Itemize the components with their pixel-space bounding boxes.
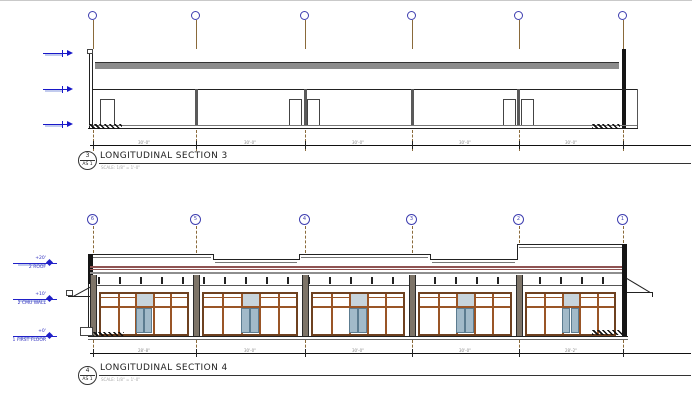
- door-transom-glass: [562, 294, 580, 306]
- level-arrow-line: [43, 53, 68, 54]
- parapet-step: [213, 254, 214, 260]
- storefront-mullion: [544, 294, 546, 334]
- dimension-text: 30'-0": [220, 348, 280, 353]
- right-canopy-slope: [626, 278, 650, 293]
- scale-note: SCALE: 1/8" = 1'-0": [101, 377, 140, 382]
- grid-bubble: [300, 11, 309, 20]
- grid-bubble: [407, 11, 416, 20]
- grid-line: [623, 226, 624, 243]
- dimension-tick: [412, 141, 413, 149]
- dimension-text: 30'-0": [328, 140, 388, 145]
- storefront-mullion: [259, 294, 261, 334]
- grid-line: [196, 226, 197, 253]
- roof-deck: [95, 63, 619, 69]
- level-arrow-tick: [62, 121, 63, 128]
- door-transom-glass: [241, 294, 260, 306]
- wall-pier: [409, 275, 416, 336]
- grid-line: [196, 20, 197, 49]
- footing-hatch: [592, 124, 620, 129]
- door-leaf: [250, 308, 258, 333]
- level-name: 2 CMU WALL: [8, 301, 46, 306]
- grid-line: [305, 20, 306, 49]
- tower-parapet-inner-line: [519, 247, 625, 248]
- level-name: 1 FIRST FLOOR: [8, 338, 46, 343]
- grid-line: [93, 20, 94, 49]
- storefront-mullion: [597, 294, 599, 334]
- storefront-mullion: [579, 294, 581, 334]
- wall-top-line: [92, 89, 637, 90]
- drawing-title: LONGITUDINAL SECTION 4: [100, 363, 228, 373]
- grid-bubble: [191, 11, 200, 20]
- door-leaf: [358, 308, 366, 333]
- dimension-tick: [305, 349, 306, 357]
- door-leaf: [349, 308, 357, 333]
- dimension-text: 28'-2": [541, 348, 601, 353]
- footing-hatch: [592, 330, 622, 335]
- storefront-bay: [311, 292, 405, 336]
- right-canopy-edge: [627, 292, 653, 293]
- dimension-text: 28'-8": [114, 348, 174, 353]
- level-arrow-line: [43, 124, 68, 125]
- parapet-line: [213, 259, 299, 260]
- door-transom-glass: [349, 294, 367, 306]
- storefront-mullion: [492, 294, 494, 334]
- storefront-mullion: [170, 294, 172, 334]
- tower-right-edge: [622, 244, 627, 336]
- dimension-tick: [93, 349, 94, 357]
- parapet-line: [299, 254, 430, 255]
- level-name: 2 ROOF: [8, 265, 46, 270]
- grid-bubble: 3: [406, 214, 417, 225]
- storefront-mullion: [278, 294, 280, 334]
- drawing-title: LONGITUDINAL SECTION 3: [100, 151, 228, 161]
- dimension-tick: [196, 349, 197, 357]
- door-leaf: [456, 308, 464, 333]
- floor-line: [88, 336, 628, 337]
- grid-line: [412, 20, 413, 49]
- grid-bubble: 1: [617, 214, 628, 225]
- view-tag-number: 4: [79, 367, 96, 375]
- tower-left-edge: [517, 244, 518, 260]
- level-arrow-tick: [62, 50, 63, 57]
- parapet-inner-line: [90, 257, 211, 258]
- level-arrow-icon: [67, 121, 73, 127]
- level-marker-icon: [46, 259, 53, 266]
- door-transom-glass: [135, 294, 153, 306]
- parapet-line: [88, 254, 213, 255]
- soffit-line: [95, 285, 622, 286]
- scale-note: SCALE: 1/8" = 1'-0": [101, 165, 140, 170]
- grid-line: [412, 226, 413, 253]
- grid-bubble: [618, 11, 627, 20]
- dimension-text: 30'-0": [114, 140, 174, 145]
- door-leaf: [136, 308, 144, 333]
- dimension-tick: [412, 349, 413, 357]
- wall-pier: [516, 275, 523, 336]
- door-leaf: [571, 308, 579, 333]
- level-elevation: +0': [8, 329, 46, 334]
- door-leaf: [144, 308, 152, 333]
- wall-pier: [302, 275, 309, 336]
- grid-line: [93, 226, 94, 253]
- level-elevation: +10': [8, 292, 46, 297]
- grid-bubble: 4: [299, 214, 310, 225]
- level-arrow-glow: [45, 90, 63, 92]
- dimension-tick: [519, 141, 520, 149]
- fascia-line: [90, 269, 622, 270]
- grid-bubble: 5: [190, 214, 201, 225]
- level-marker-icon: [46, 332, 53, 339]
- door-opening: [289, 99, 302, 126]
- dimension-tick: [623, 349, 624, 357]
- joist-ticks: [98, 277, 620, 284]
- dimension-line: [90, 353, 691, 354]
- storefront-mullion: [153, 294, 155, 334]
- door-transom-glass: [456, 294, 474, 306]
- grid-bubble: [514, 11, 523, 20]
- dimension-text: 30'-0": [220, 140, 280, 145]
- parapet-line: [430, 259, 517, 260]
- storefront-bay: [418, 292, 512, 336]
- storefront-mullion: [331, 294, 333, 334]
- grid-bubble: 6: [87, 214, 98, 225]
- grid-line: [305, 226, 306, 253]
- parapet-inner-line: [301, 257, 428, 258]
- door-opening: [100, 99, 115, 126]
- storefront-mullion: [438, 294, 440, 334]
- level-arrow-line: [43, 89, 68, 90]
- storefront-mullion: [222, 294, 224, 334]
- door-opening: [521, 99, 534, 126]
- dimension-tick: [519, 349, 520, 357]
- door-leaf: [562, 308, 570, 333]
- door-leaf: [465, 308, 473, 333]
- column: [195, 89, 198, 126]
- parapet-step: [299, 254, 300, 260]
- dimension-tick: [93, 141, 94, 149]
- floor-line: [89, 125, 637, 126]
- wall-right-edge: [637, 89, 638, 128]
- right-canopy-end: [652, 292, 653, 297]
- grid-bubble: [88, 11, 97, 20]
- level-arrow-glow: [45, 125, 63, 127]
- column: [517, 89, 520, 126]
- footing-hatch: [89, 124, 122, 129]
- dimension-text: 30'-0": [541, 140, 601, 145]
- gray-band: [90, 272, 622, 274]
- dimension-tick: [305, 141, 306, 149]
- title-underline: [99, 375, 691, 376]
- left-canopy-end: [66, 290, 73, 296]
- dimension-text: 30'-0": [435, 140, 495, 145]
- parapet-inner-line: [215, 262, 297, 263]
- view-tag: 3 AS 1: [78, 151, 97, 170]
- storefront-bay: [202, 292, 298, 336]
- view-tag-sheet: AS 1: [79, 376, 96, 383]
- parapet-inner-line: [432, 262, 515, 263]
- floor-line: [88, 339, 628, 340]
- floor-line: [88, 128, 638, 129]
- grid-line: [519, 226, 520, 243]
- grid-bubble: 2: [513, 214, 524, 225]
- section3-drawing: 30'-0" 30'-0" 30'-0" 30'-0" 30'-0" 3 AS …: [0, 1, 692, 201]
- dimension-tick: [623, 141, 624, 149]
- title-underline: [99, 163, 691, 164]
- grid-line: [623, 20, 624, 49]
- wall-pier: [193, 275, 200, 336]
- tower-parapet-line: [517, 244, 627, 245]
- view-tag-number: 3: [79, 152, 96, 160]
- parapet-cap: [87, 49, 93, 54]
- drawing-sheet: 30'-0" 30'-0" 30'-0" 30'-0" 30'-0" 3 AS …: [0, 0, 692, 403]
- door-opening: [503, 99, 516, 126]
- section4-drawing: 6 5 4 3 2 1 +20' 2 ROOF +10' 2 CMU WALL …: [0, 201, 692, 403]
- dimension-tick: [196, 141, 197, 149]
- storefront-mullion: [385, 294, 387, 334]
- dimension-text: 30'-0": [328, 348, 388, 353]
- level-arrow-icon: [67, 86, 73, 92]
- door-leaf: [241, 308, 249, 333]
- column: [411, 89, 414, 126]
- dimension-line: [90, 145, 691, 146]
- parapet-step: [430, 254, 431, 260]
- storefront-mullion: [118, 294, 120, 334]
- level-arrow-icon: [67, 50, 73, 56]
- low-wall-stub: [80, 327, 93, 336]
- dimension-text: 30'-0": [435, 348, 495, 353]
- level-marker-icon: [46, 295, 53, 302]
- view-tag: 4 AS 1: [78, 366, 97, 385]
- storefront-bay: [99, 292, 189, 336]
- door-opening: [307, 99, 320, 126]
- grid-line: [519, 20, 520, 49]
- left-parapet: [89, 51, 90, 128]
- level-elevation: +20': [8, 256, 46, 261]
- footing-hatch: [92, 332, 124, 336]
- view-tag-sheet: AS 1: [79, 161, 96, 168]
- storefront-mullion: [367, 294, 369, 334]
- level-arrow-tick: [62, 86, 63, 93]
- storefront-mullion: [474, 294, 476, 334]
- level-arrow-glow: [45, 54, 63, 56]
- fascia-band: [90, 266, 622, 268]
